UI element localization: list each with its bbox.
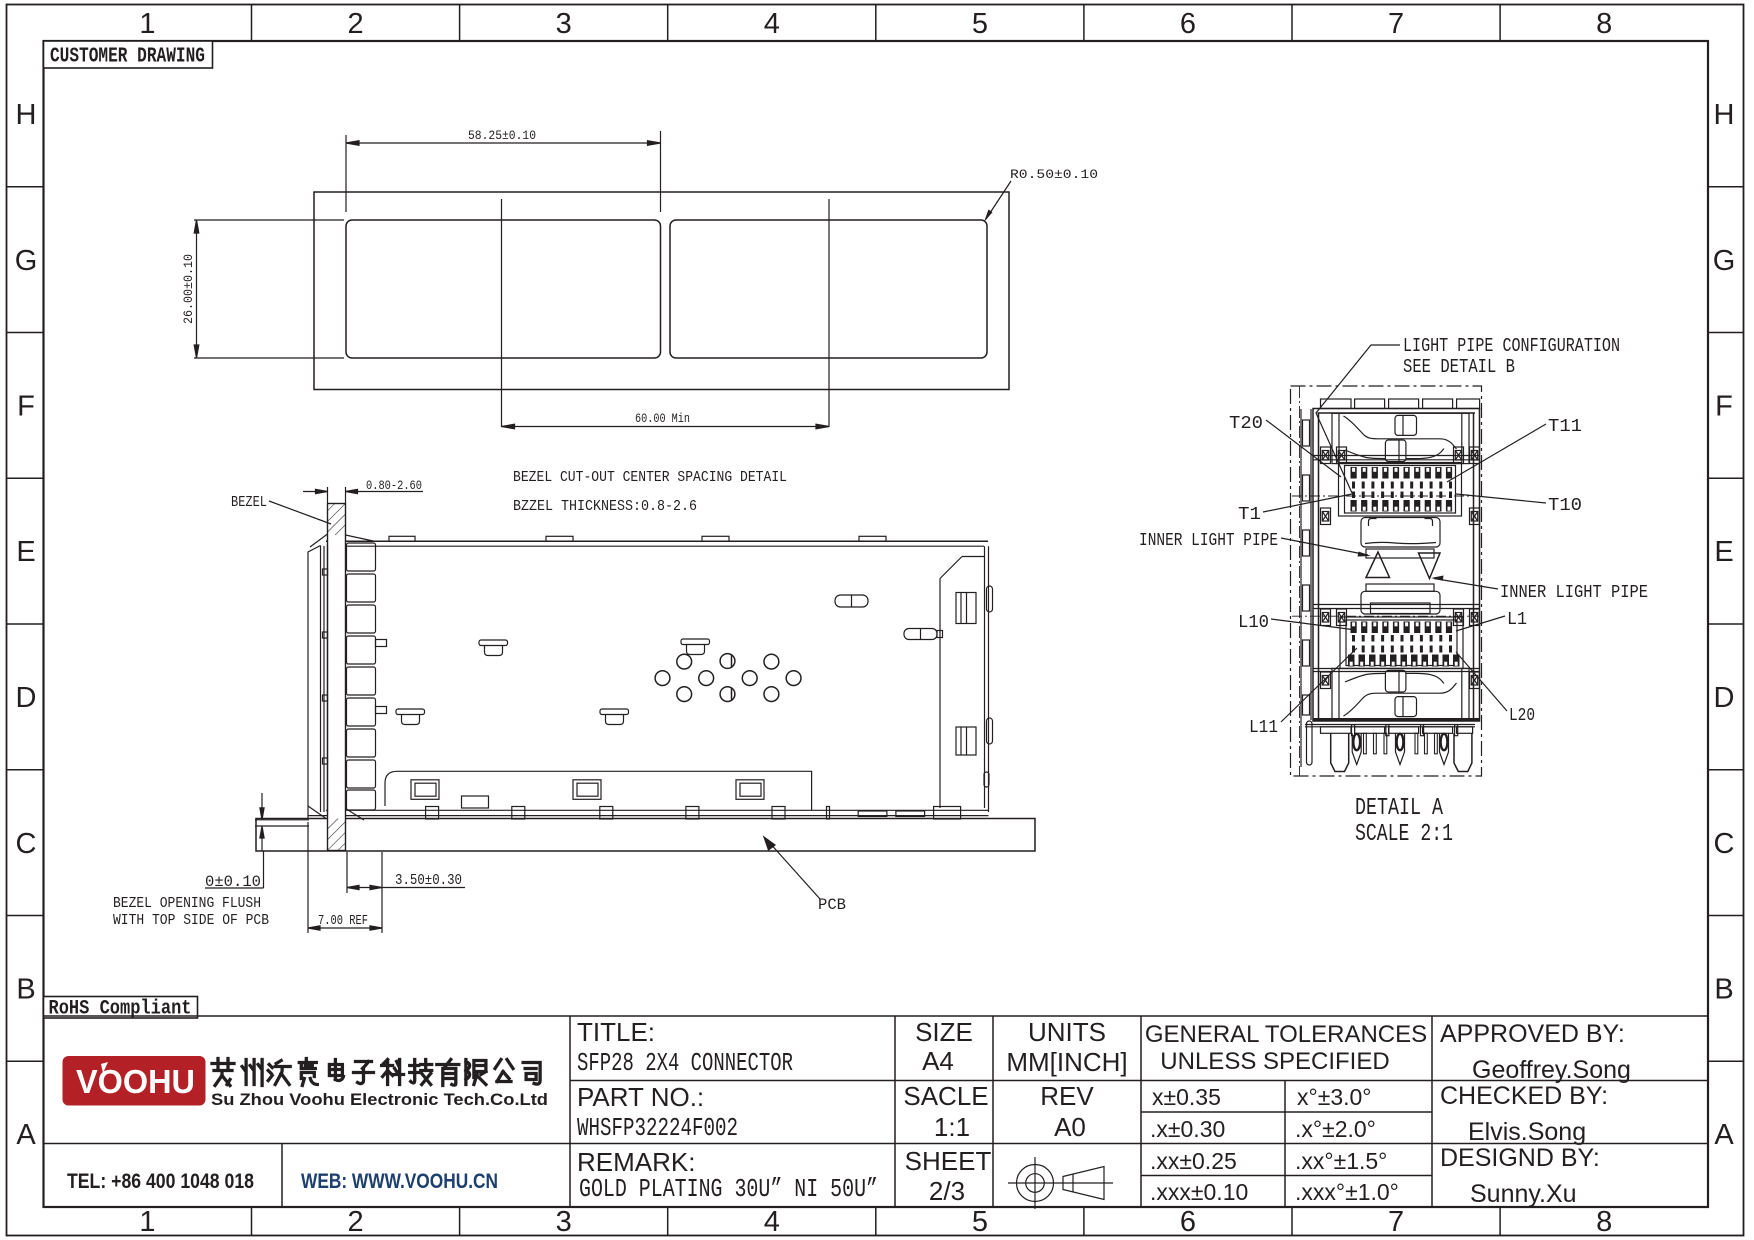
svg-text:R0.50±0.10: R0.50±0.10 — [1010, 167, 1098, 182]
svg-text:T1: T1 — [1238, 505, 1261, 525]
svg-text:INNER LIGHT PIPE: INNER LIGHT PIPE — [1500, 583, 1648, 603]
svg-text:5: 5 — [972, 8, 988, 40]
svg-text:C: C — [16, 828, 37, 860]
svg-text:DESIGND BY:: DESIGND BY: — [1440, 1144, 1600, 1172]
svg-text:58.25±0.10: 58.25±0.10 — [468, 128, 536, 143]
svg-text:B: B — [16, 974, 35, 1006]
svg-text:L11: L11 — [1249, 718, 1278, 738]
svg-text:GENERAL TOLERANCES: GENERAL TOLERANCES — [1145, 1021, 1427, 1048]
svg-text:3: 3 — [556, 1206, 572, 1238]
svg-text:H: H — [16, 99, 37, 131]
svg-text:LIGHT PIPE CONFIGURATION: LIGHT PIPE CONFIGURATION — [1403, 335, 1620, 357]
svg-text:TEL: +86 400 1048 018: TEL: +86 400 1048 018 — [67, 1170, 254, 1193]
svg-text:A: A — [1714, 1119, 1734, 1151]
svg-text:2/3: 2/3 — [929, 1176, 965, 1206]
svg-text:SACLE: SACLE — [903, 1081, 988, 1111]
svg-text:BEZEL OPENING FLUSH: BEZEL OPENING FLUSH — [113, 895, 261, 912]
svg-text:G: G — [1713, 245, 1736, 277]
svg-text:4: 4 — [764, 1206, 780, 1238]
svg-text:BEZEL: BEZEL — [231, 495, 267, 511]
svg-text:SFP28 2X4 CONNECTOR: SFP28 2X4 CONNECTOR — [577, 1048, 793, 1078]
svg-text:INNER LIGHT PIPE: INNER LIGHT PIPE — [1139, 531, 1278, 551]
svg-text:B: B — [1714, 974, 1733, 1006]
svg-text:Su Zhou Voohu Electronic Tech.: Su Zhou Voohu Electronic Tech.Co.Ltd — [211, 1091, 548, 1109]
svg-text:WHSFP32224F002: WHSFP32224F002 — [577, 1113, 738, 1143]
svg-text:A0: A0 — [1054, 1112, 1086, 1142]
svg-text:Sunny.Xu: Sunny.Xu — [1470, 1180, 1577, 1208]
svg-text:T20: T20 — [1229, 414, 1263, 434]
svg-text:PART NO.:: PART NO.: — [577, 1082, 704, 1112]
svg-text:UNLESS SPECIFIED: UNLESS SPECIFIED — [1160, 1048, 1389, 1075]
svg-text:8: 8 — [1596, 8, 1612, 40]
svg-text:APPROVED BY:: APPROVED BY: — [1440, 1020, 1625, 1048]
svg-text:GOLD PLATING 30U” NI 50U”: GOLD PLATING 30U” NI 50U” — [579, 1174, 878, 1204]
svg-text:3.50±0.30: 3.50±0.30 — [395, 873, 462, 889]
svg-text:BZZEL THICKNESS:0.8-2.6: BZZEL THICKNESS:0.8-2.6 — [513, 499, 697, 515]
svg-text:3: 3 — [556, 8, 572, 40]
svg-text:x±0.35: x±0.35 — [1152, 1084, 1221, 1110]
svg-text:REV: REV — [1040, 1081, 1094, 1111]
svg-text:7: 7 — [1388, 1206, 1404, 1238]
svg-text:CUSTOMER DRAWING: CUSTOMER DRAWING — [50, 46, 205, 69]
svg-text:.xxx±0.10: .xxx±0.10 — [1150, 1179, 1248, 1205]
svg-text:TITLE:: TITLE: — [577, 1017, 655, 1047]
svg-text:L20: L20 — [1509, 706, 1535, 726]
svg-text:BEZEL CUT-OUT CENTER SPACING D: BEZEL CUT-OUT CENTER SPACING DETAIL — [513, 470, 787, 486]
svg-text:RoHS Compliant: RoHS Compliant — [49, 998, 192, 1021]
svg-text:DETAIL A: DETAIL A — [1355, 795, 1443, 822]
svg-text:60.00 Min: 60.00 Min — [635, 411, 690, 426]
svg-text:7: 7 — [1388, 8, 1404, 40]
svg-text:D: D — [1714, 682, 1735, 714]
svg-text:.x°±2.0°: .x°±2.0° — [1295, 1116, 1376, 1142]
svg-text:0±0.10: 0±0.10 — [205, 873, 261, 891]
svg-text:T11: T11 — [1548, 417, 1582, 437]
svg-text:4: 4 — [764, 8, 780, 40]
svg-text:7.00 REF: 7.00 REF — [318, 913, 368, 929]
svg-text:G: G — [15, 245, 38, 277]
svg-text:.xx±0.25: .xx±0.25 — [1150, 1148, 1237, 1174]
svg-text:F: F — [17, 391, 35, 423]
svg-text:MM[INCH]: MM[INCH] — [1006, 1047, 1127, 1077]
svg-text:WITH TOP SIDE OF PCB: WITH TOP SIDE OF PCB — [113, 912, 269, 929]
svg-text:6: 6 — [1180, 8, 1196, 40]
svg-text:F: F — [1715, 391, 1733, 423]
svg-text:A4: A4 — [922, 1046, 954, 1076]
svg-text:.xx°±1.5°: .xx°±1.5° — [1295, 1148, 1387, 1174]
svg-text:SEE DETAIL B: SEE DETAIL B — [1403, 356, 1515, 378]
svg-text:T10: T10 — [1548, 496, 1582, 516]
svg-text:VOOHU: VOOHU — [76, 1063, 195, 1100]
svg-text:WEB: WWW.VOOHU.CN: WEB: WWW.VOOHU.CN — [301, 1170, 498, 1193]
svg-text:1: 1 — [139, 1206, 155, 1238]
svg-text:5: 5 — [972, 1206, 988, 1238]
svg-text:E: E — [1714, 536, 1733, 568]
svg-text:D: D — [16, 682, 37, 714]
svg-text:REMARK:: REMARK: — [577, 1147, 695, 1177]
svg-text:x°±3.0°: x°±3.0° — [1297, 1084, 1372, 1110]
svg-text:Elvis.Song: Elvis.Song — [1468, 1118, 1586, 1146]
svg-text:6: 6 — [1180, 1206, 1196, 1238]
svg-text:1:1: 1:1 — [934, 1112, 970, 1142]
svg-text:Geoffrey.Song: Geoffrey.Song — [1472, 1056, 1631, 1084]
svg-text:2: 2 — [348, 8, 364, 40]
svg-text:26.00±0.10: 26.00±0.10 — [181, 254, 196, 324]
svg-text:L1: L1 — [1507, 610, 1527, 630]
svg-text:1: 1 — [139, 8, 155, 40]
svg-text:H: H — [1714, 99, 1735, 131]
svg-text:SIZE: SIZE — [915, 1017, 973, 1047]
svg-text:A: A — [16, 1119, 36, 1151]
svg-text:E: E — [16, 536, 35, 568]
svg-text:.xxx°±1.0°: .xxx°±1.0° — [1295, 1179, 1399, 1205]
svg-text:0.80-2.60: 0.80-2.60 — [366, 478, 422, 493]
svg-text:8: 8 — [1596, 1206, 1612, 1238]
svg-text:C: C — [1714, 828, 1735, 860]
svg-text:SCALE 2:1: SCALE 2:1 — [1355, 821, 1453, 848]
svg-text:UNITS: UNITS — [1028, 1017, 1106, 1047]
svg-text:SHEET: SHEET — [905, 1146, 992, 1176]
svg-text:PCB: PCB — [818, 896, 846, 914]
svg-text:L10: L10 — [1238, 613, 1269, 633]
svg-text:2: 2 — [348, 1206, 364, 1238]
svg-text:CHECKED BY:: CHECKED BY: — [1440, 1082, 1608, 1110]
svg-text:.x±0.30: .x±0.30 — [1150, 1116, 1225, 1142]
